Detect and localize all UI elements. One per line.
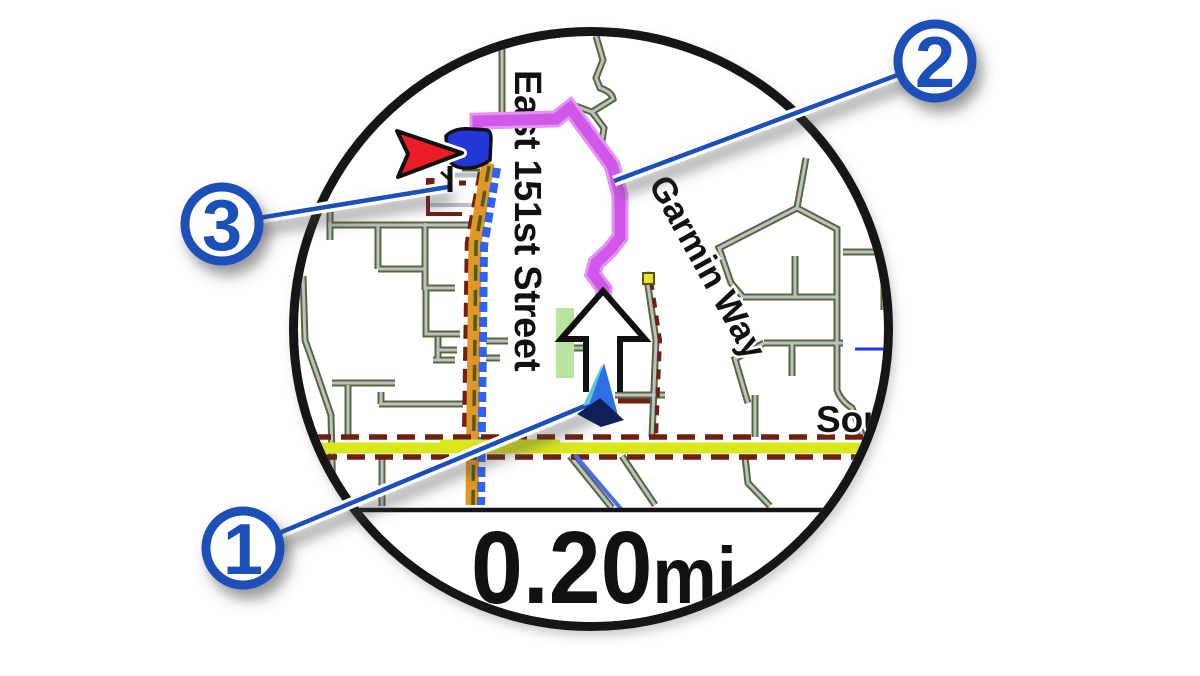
svg-text:3: 3 (202, 186, 242, 266)
svg-text:1: 1 (223, 510, 263, 590)
svg-text:2: 2 (915, 23, 955, 103)
